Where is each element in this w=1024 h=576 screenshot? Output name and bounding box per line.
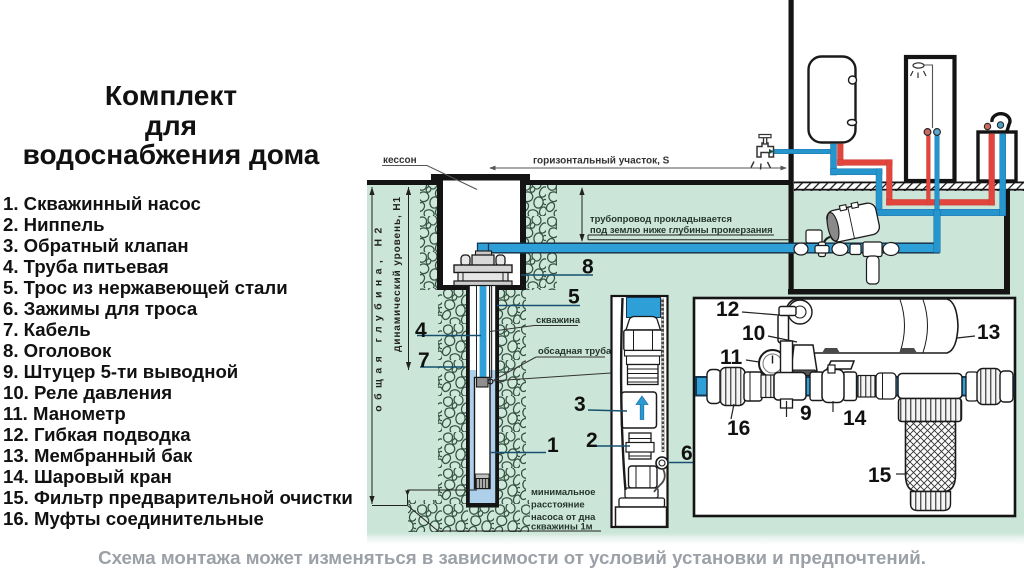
svg-text:8: 8 bbox=[582, 256, 594, 279]
svg-text:1. Скважинный насос: 1. Скважинный насос bbox=[3, 193, 201, 214]
svg-text:6. Зажимы для троса: 6. Зажимы для троса bbox=[3, 298, 198, 319]
svg-text:16. Муфты соединительные: 16. Муфты соединительные bbox=[3, 508, 264, 529]
svg-text:13: 13 bbox=[977, 321, 1000, 344]
svg-text:11: 11 bbox=[720, 346, 743, 369]
svg-text:2. Ниппель: 2. Ниппель bbox=[3, 214, 105, 235]
svg-text:12: 12 bbox=[716, 298, 739, 321]
svg-text:9. Штуцер 5-ти выводной: 9. Штуцер 5-ти выводной bbox=[3, 361, 238, 382]
svg-text:5: 5 bbox=[568, 286, 580, 309]
svg-text:водоснабжения дома: водоснабжения дома bbox=[23, 139, 320, 170]
svg-text:15: 15 bbox=[868, 464, 892, 487]
svg-text:скважины 1м: скважины 1м bbox=[531, 521, 593, 532]
svg-text:3: 3 bbox=[574, 393, 586, 416]
svg-text:14: 14 bbox=[843, 407, 867, 430]
svg-text:общая глубина, Н2: общая глубина, Н2 bbox=[373, 222, 385, 411]
svg-text:8. Оголовок: 8. Оголовок bbox=[3, 340, 112, 361]
svg-text:14. Шаровый кран: 14. Шаровый кран bbox=[3, 466, 172, 487]
svg-text:обсадная труба: обсадная труба bbox=[538, 345, 612, 356]
svg-text:11. Манометр: 11. Манометр bbox=[3, 403, 126, 424]
svg-text:12. Гибкая подводка: 12. Гибкая подводка bbox=[3, 424, 191, 445]
svg-text:Комплект: Комплект bbox=[105, 80, 237, 111]
svg-text:для: для bbox=[145, 110, 197, 141]
svg-text:под землю ниже глубины промерз: под землю ниже глубины промерзания bbox=[590, 224, 773, 235]
svg-text:6: 6 bbox=[681, 442, 693, 465]
svg-text:1: 1 bbox=[547, 434, 559, 457]
svg-text:5. Трос из нержавеющей стали: 5. Трос из нержавеющей стали bbox=[3, 277, 288, 298]
svg-text:13. Мембранный бак: 13. Мембранный бак bbox=[3, 445, 193, 466]
svg-text:кессон: кессон bbox=[383, 155, 417, 166]
svg-text:Схема монтажа может изменяться: Схема монтажа может изменяться в зависим… bbox=[98, 547, 926, 568]
svg-text:3. Обратный клапан: 3. Обратный клапан bbox=[3, 235, 189, 256]
svg-text:7. Кабель: 7. Кабель bbox=[3, 319, 91, 340]
svg-text:динамический уровень, Н1: динамический уровень, Н1 bbox=[392, 196, 403, 352]
svg-text:4: 4 bbox=[415, 319, 427, 342]
svg-text:10. Реле давления: 10. Реле давления bbox=[3, 382, 172, 403]
svg-text:9: 9 bbox=[800, 402, 812, 425]
svg-text:минимальное: минимальное bbox=[531, 486, 595, 497]
svg-text:скважина: скважина bbox=[536, 314, 581, 325]
svg-text:15. Фильтр предварительной очи: 15. Фильтр предварительной очистки bbox=[3, 487, 353, 508]
svg-text:16: 16 bbox=[727, 417, 750, 440]
svg-text:трубопровод прокладывается: трубопровод прокладывается bbox=[590, 213, 732, 224]
svg-text:2: 2 bbox=[586, 429, 598, 452]
svg-text:4. Труба питьевая: 4. Труба питьевая bbox=[3, 256, 169, 277]
svg-text:7: 7 bbox=[418, 349, 430, 372]
svg-text:10: 10 bbox=[742, 322, 765, 345]
svg-text:горизонтальный участок, S: горизонтальный участок, S bbox=[533, 156, 670, 167]
svg-text:расстояние: расстояние bbox=[531, 499, 585, 510]
